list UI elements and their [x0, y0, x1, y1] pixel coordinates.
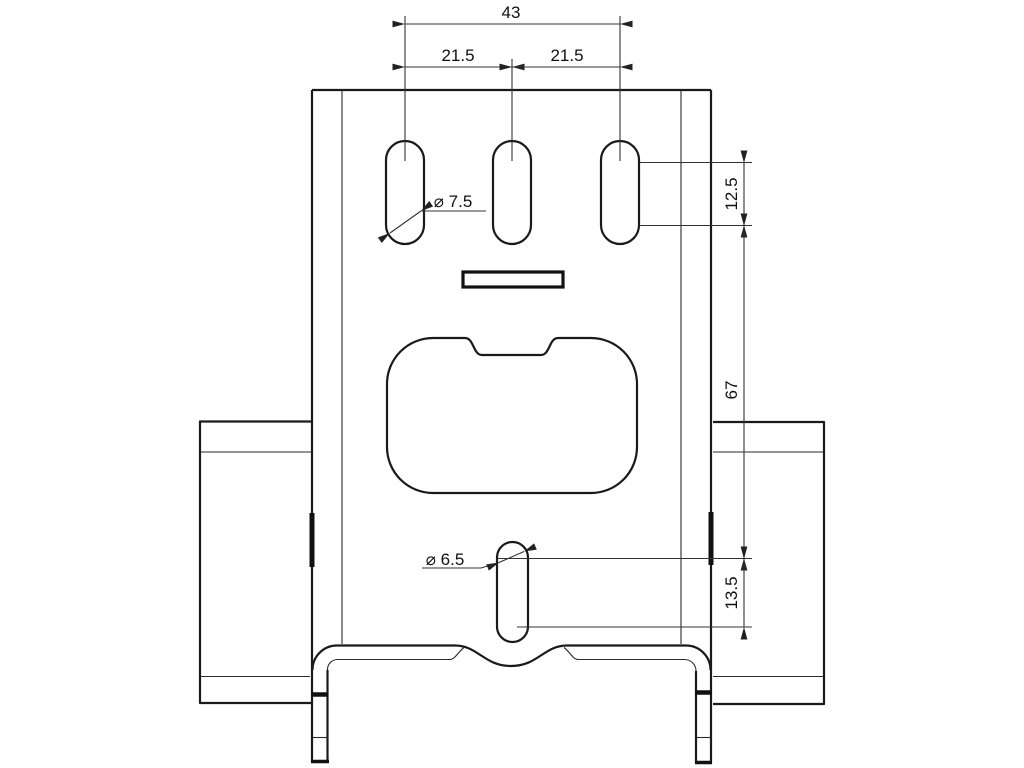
dim-label-upper-slot-width: ⌀ 7.5: [434, 192, 473, 211]
bracket-drawing: 43 21.5 21.5 12.5 67 13.5 ⌀ 7.5 ⌀ 6.5: [0, 0, 1024, 768]
din-rail-clip: [311, 646, 712, 764]
side-flange-left: [200, 422, 312, 704]
dim-label-top-left-pitch: 21.5: [441, 46, 474, 65]
rectangular-cutout: [463, 272, 563, 287]
bracket-body: [312, 90, 711, 763]
side-flange-right: [713, 422, 824, 704]
dim-label-lower-slot-length: 13.5: [722, 576, 741, 609]
dim-label-top-right-pitch: 21.5: [550, 46, 583, 65]
display-window-cutout: [387, 338, 637, 493]
dim-label-top-total: 43: [502, 3, 521, 22]
dim-label-slot-span: 67: [722, 381, 741, 400]
dim-label-upper-slot-length: 12.5: [722, 177, 741, 210]
technical-drawing-page: 43 21.5 21.5 12.5 67 13.5 ⌀ 7.5 ⌀ 6.5: [0, 0, 1024, 768]
dimension-annotations: 43 21.5 21.5 12.5 67 13.5 ⌀ 7.5 ⌀ 6.5: [390, 3, 752, 627]
dim-label-lower-slot-width: ⌀ 6.5: [426, 550, 465, 569]
